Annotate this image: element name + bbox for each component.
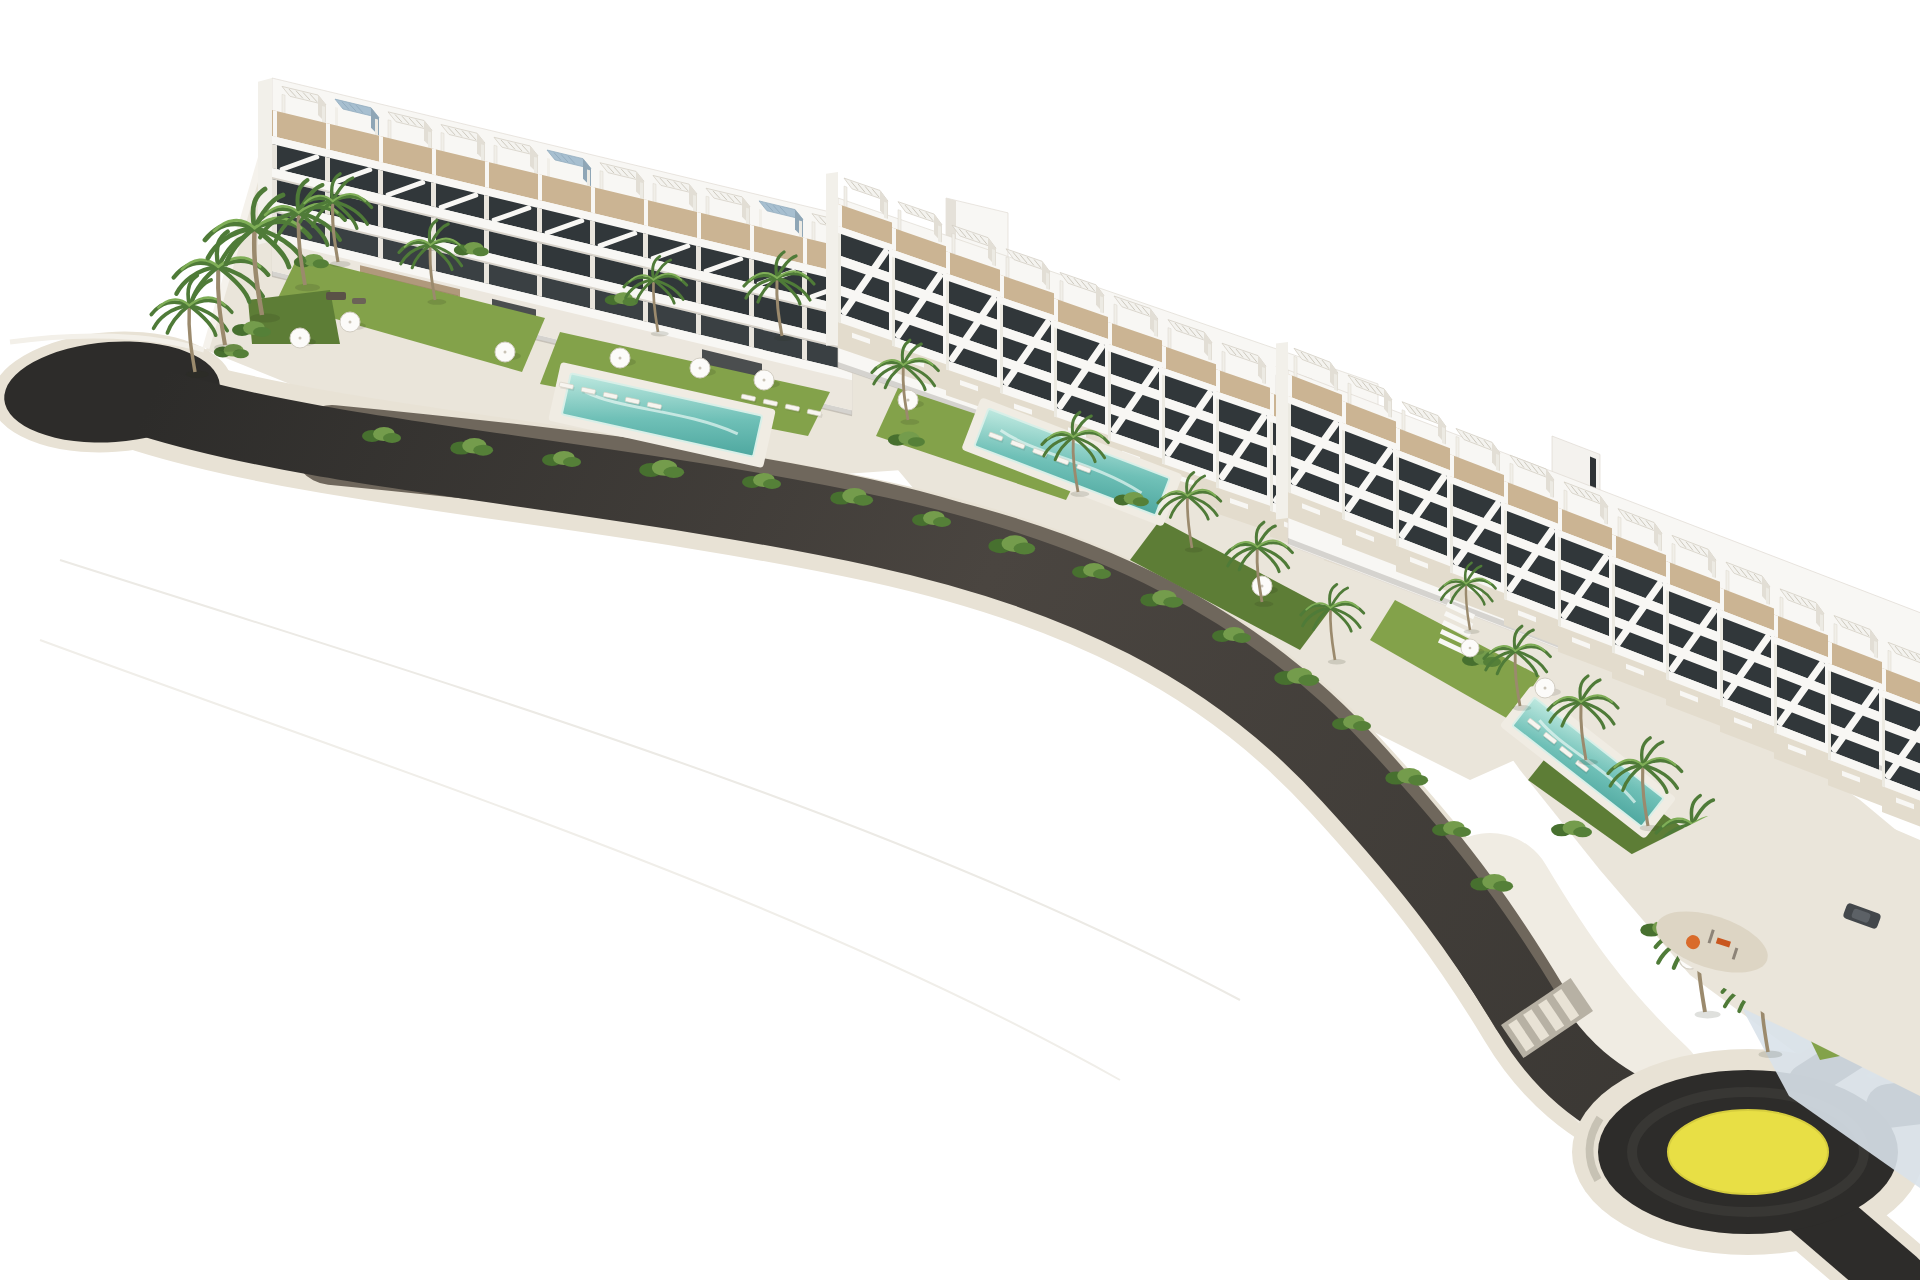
site-plan-render: [0, 0, 1920, 1280]
roundabout-center-island: [1668, 1110, 1828, 1194]
garden-seating: [326, 292, 346, 300]
render-canvas: [0, 0, 1920, 1280]
